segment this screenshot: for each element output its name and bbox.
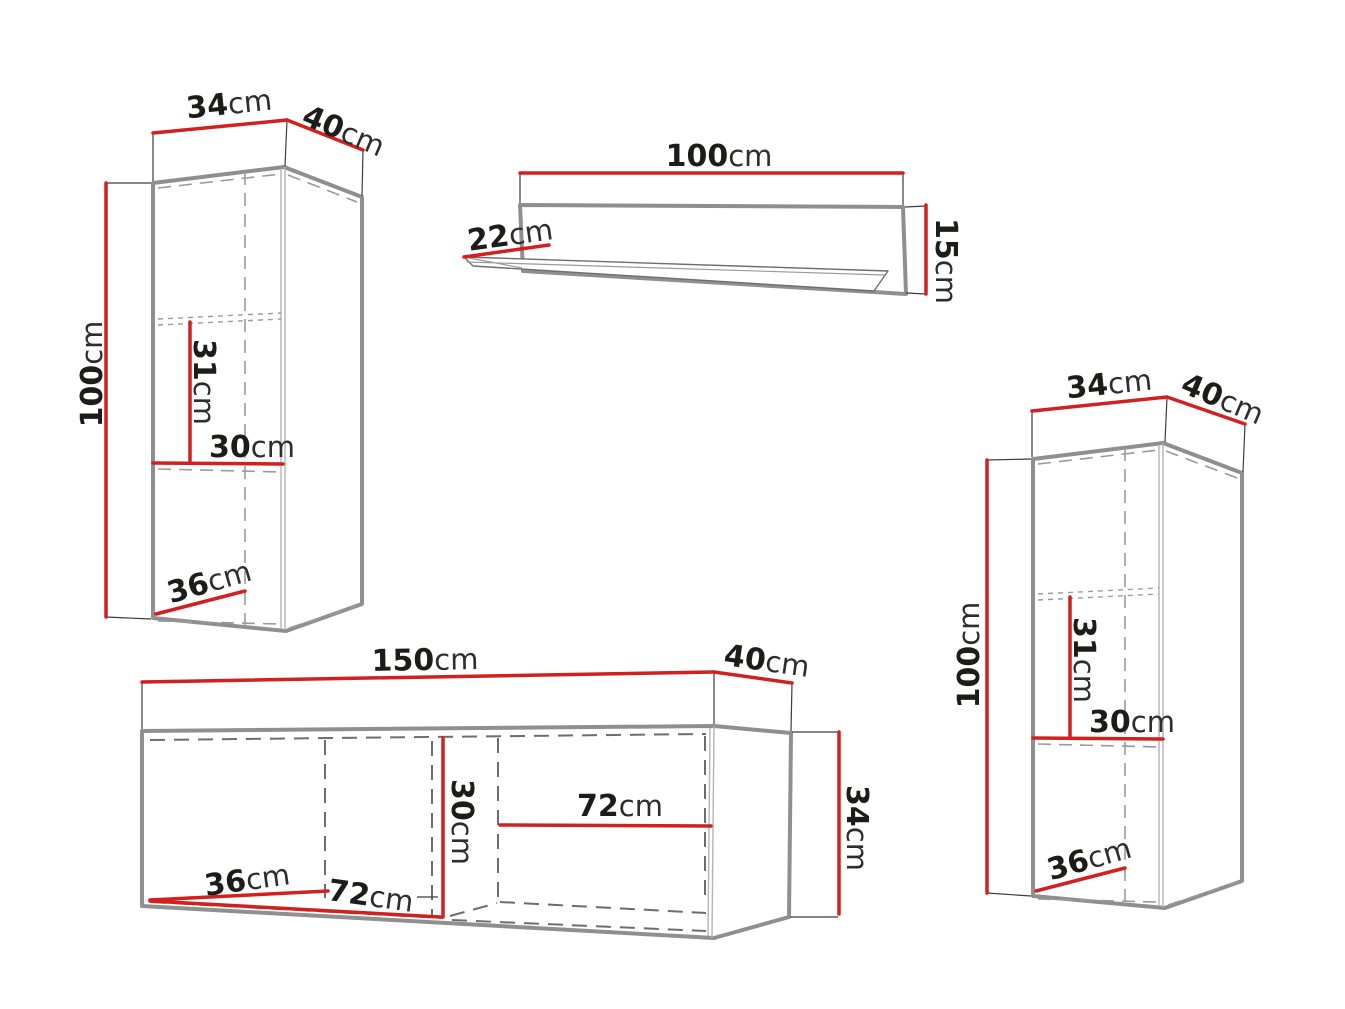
tv-stand-height-label: 34cm: [839, 785, 874, 871]
shelf-height-label: 15cm: [928, 218, 963, 304]
tv-stand-width-label: 150cm: [371, 642, 478, 679]
cabinet-left-height-label: 100cm: [75, 321, 110, 428]
cabinet-left-inner-width-label: 30cm: [209, 430, 295, 465]
tv-stand-right-inner-width-label: 72cm: [577, 789, 663, 824]
cabinet-right-height-label: 100cm: [952, 602, 987, 709]
shelf-width-label: 100cm: [666, 139, 773, 174]
tv-stand-inner-height-label: 30cm: [444, 779, 479, 865]
tv-stand-drawing: 150cm 40cm 34cm 30cm 72cm 72cm 36cm: [142, 638, 874, 938]
cabinet-left-width-label: 34cm: [185, 83, 274, 127]
cabinet-right-body: [1033, 443, 1242, 908]
tv-stand-dim-line-right-inner-width: [500, 825, 711, 826]
cabinet-left-inner-height-label: 31cm: [186, 339, 221, 425]
tv-stand-depth-label: 40cm: [722, 638, 812, 685]
cabinet-right-drawing: 34cm 40cm 100cm 31cm 30cm 36cm: [952, 363, 1269, 908]
cabinet-right-depth-label: 40cm: [1176, 366, 1269, 432]
cabinet-right-inner-height-label: 31cm: [1066, 617, 1101, 703]
cabinet-right-inner-width-label: 30cm: [1089, 705, 1175, 740]
shelf-drawing: 100cm 22cm 15cm: [464, 139, 963, 304]
cabinet-left-body: [153, 167, 362, 631]
cabinet-left-depth-label: 40cm: [297, 98, 390, 164]
cabinet-left-drawing: 34cm 40cm 100cm 31cm 30cm 36cm: [75, 83, 390, 631]
furniture-dimension-diagram: 34cm 40cm 100cm 31cm 30cm 36cm 100cm 22c…: [0, 0, 1345, 1009]
